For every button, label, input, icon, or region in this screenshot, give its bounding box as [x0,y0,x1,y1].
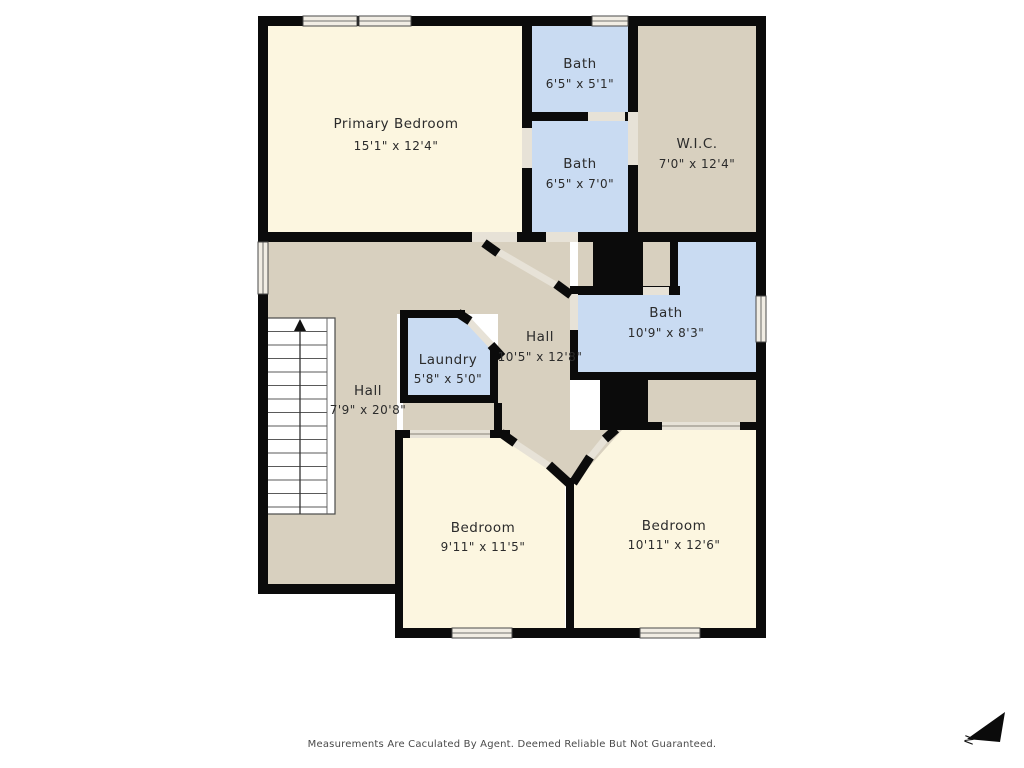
window-bath-top [592,16,628,26]
door-bath-mid-to-hall [546,232,578,242]
bedroom-left-dims: 9'11" x 11'5" [441,540,526,554]
wall-outer-bottom [395,628,766,638]
bath-right-dims: 10'9" x 8'3" [628,326,705,340]
wic-dims: 7'0" x 12'4" [659,157,736,171]
wall-hall-bottom [258,584,403,594]
wic-name: W.I.C. [676,136,717,152]
stairs [267,318,335,514]
door-bath-to-wic [628,112,638,165]
north-arrow: N [961,712,1005,746]
primary-bedroom-dims: 15'1" x 12'4" [354,139,439,153]
door-hall-to-bath-right [570,294,578,330]
wall-top-closet [670,240,678,290]
primary-bedroom-name: Primary Bedroom [333,116,458,132]
door-top-closet [643,287,669,295]
wall-bath-bottom [570,372,766,380]
north-letter: N [961,734,976,745]
wall-bedroom-left-side [395,430,403,638]
wall-laundry-top [400,310,465,318]
window-bedroom-left [452,628,512,638]
floor-plan-page: Primary Bedroom 15'1" x 12'4" Bath 6'5" … [0,0,1024,768]
room-hall-upper [268,242,570,314]
bath-mid-dims: 6'5" x 7'0" [546,177,614,191]
room-hall-nook [578,242,593,290]
wall-laundry-bottom [400,395,498,403]
window-primary-1 [303,16,357,26]
door-primary-to-bath [522,128,532,168]
laundry-name: Laundry [419,352,478,368]
room-wic [638,26,756,232]
bath-mid-name: Bath [563,156,596,172]
window-hall-left [258,242,268,294]
footer-disclaimer: Measurements Are Caculated By Agent. Dee… [308,739,717,750]
hall-center-name: Hall [526,329,554,345]
window-primary-2 [359,16,411,26]
hall-left-dims: 7'9" x 20'8" [330,403,407,417]
closet-right-bedroom [648,380,756,422]
chase-lower-ext [600,420,648,430]
stairs-outline [267,318,335,514]
closet-top [643,242,670,288]
laundry-dims: 5'8" x 5'0" [414,372,482,386]
door-bath-to-bath [588,112,625,121]
bedroom-right-name: Bedroom [642,518,707,534]
chase-upper [593,242,643,292]
floor-plan-drawing: Primary Bedroom 15'1" x 12'4" Bath 6'5" … [0,0,1024,768]
wall-laundry-left [400,310,408,403]
window-bedroom-right [640,628,700,638]
bath-top-name: Bath [563,56,596,72]
wall-outer-left [258,16,268,594]
bedroom-left-name: Bedroom [451,520,516,536]
hall-center-dims: 10'5" x 12'8" [498,350,583,364]
wall-between-bedrooms [566,478,574,628]
window-bath-right [756,296,766,342]
bedroom-right-dims: 10'11" x 12'6" [628,538,721,552]
hall-left-name: Hall [354,383,382,399]
bath-right-name: Bath [649,305,682,321]
bath-top-dims: 6'5" x 5'1" [546,77,614,91]
door-primary-to-hall [472,232,517,242]
